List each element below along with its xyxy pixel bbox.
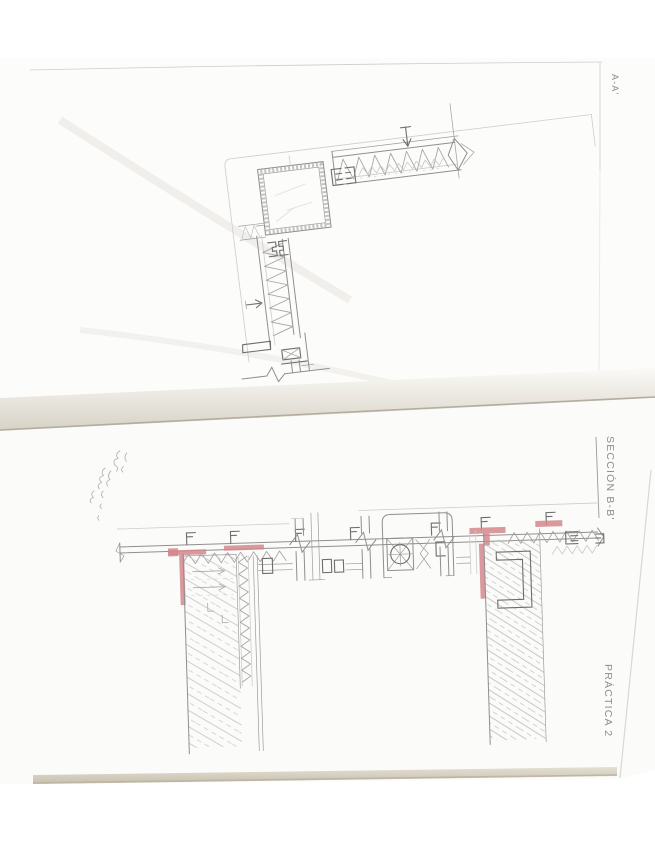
red-bar-right <box>535 520 562 527</box>
paper-bottom <box>0 398 655 784</box>
left-wall-hatch <box>183 553 242 748</box>
scanned-document-page: A-A' <box>0 0 655 848</box>
paper-top <box>0 58 655 408</box>
label-seccion-b-b: SECCIÓN B-B' <box>604 436 617 521</box>
scan-artwork: A-A' <box>0 0 655 848</box>
sheet-top: A-A' <box>0 58 655 408</box>
label-a-a: A-A' <box>610 74 620 96</box>
sheet-bottom: SECCIÓN B-B' PRÁCTICA 2 <box>0 398 655 784</box>
right-wall-hatch <box>484 539 546 741</box>
red-tee-right <box>469 527 505 534</box>
label-practica: PRÁCTICA 2 <box>602 664 615 737</box>
right-wall <box>484 529 547 745</box>
